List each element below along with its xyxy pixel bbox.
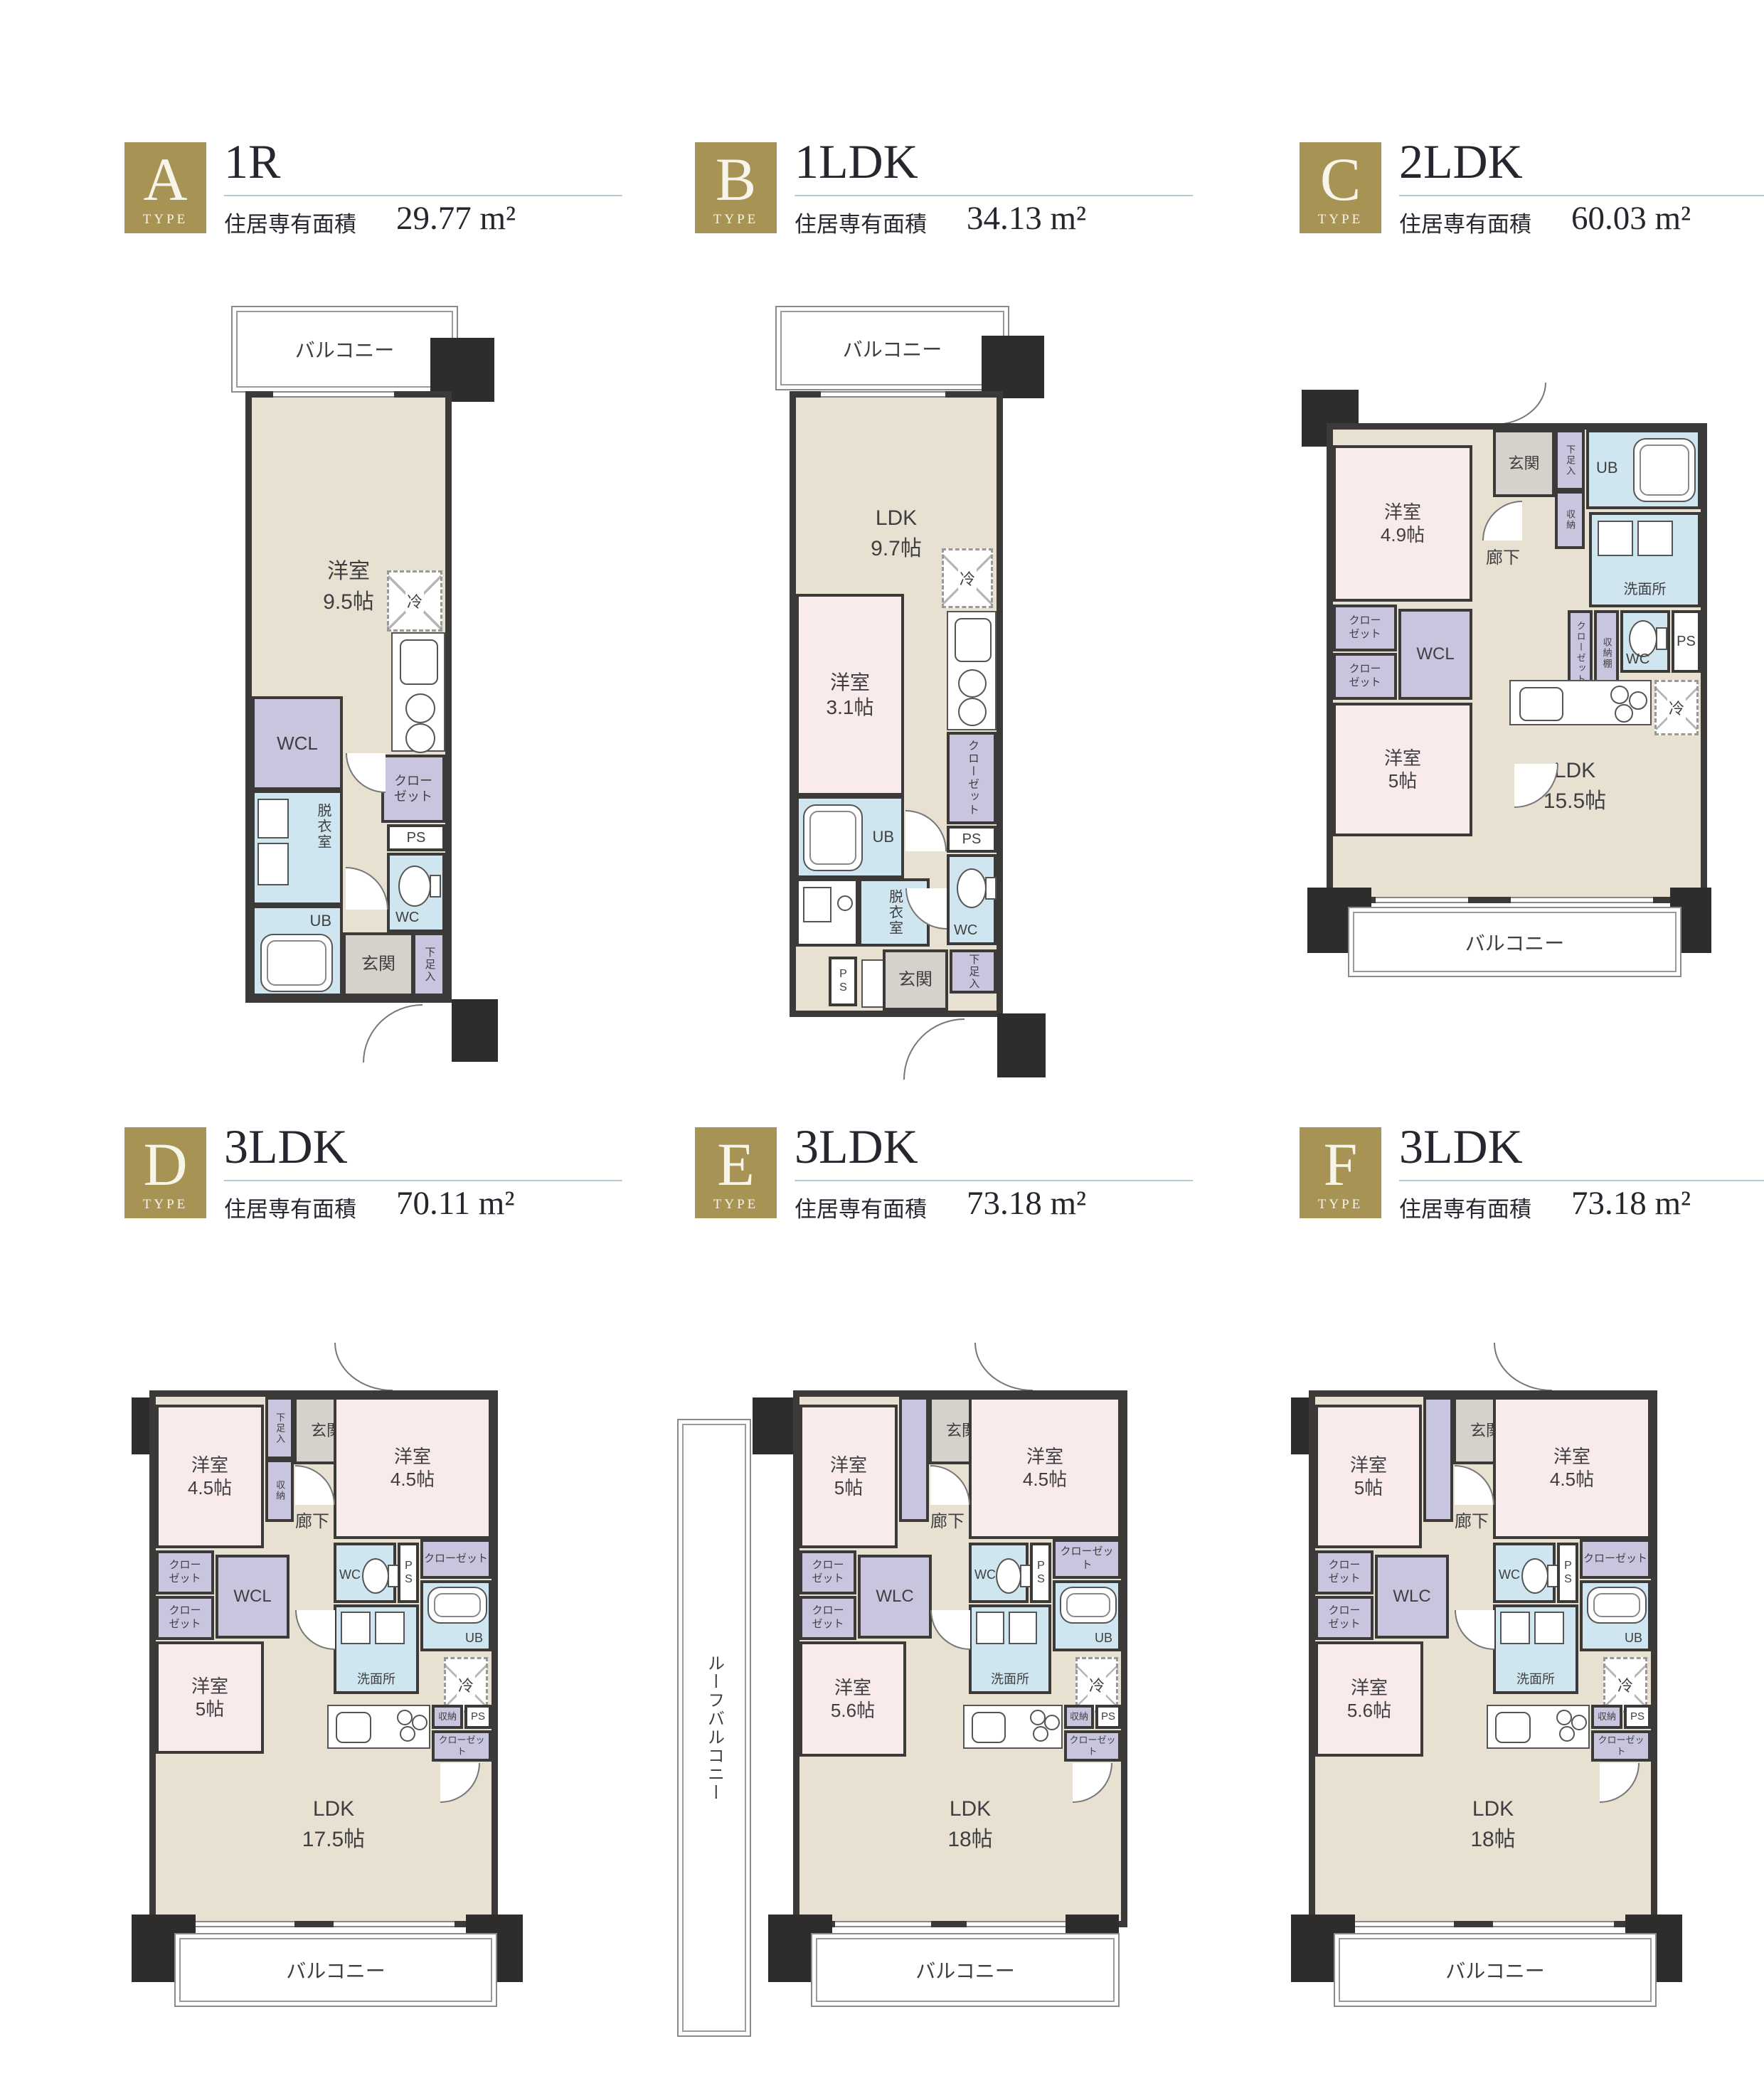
closet-label: クローゼット: [1346, 614, 1383, 641]
type-badge-b: B TYPE: [695, 142, 777, 233]
closet: クローゼット: [947, 732, 997, 824]
type-letter: D: [143, 1134, 187, 1195]
hall-label: 廊下: [295, 1511, 329, 1533]
type-letter: C: [1320, 149, 1361, 210]
header-type-b: B TYPE 1LDK 住居専有面積 34.13 m²: [695, 142, 1193, 270]
washroom: 洗面所: [969, 1604, 1051, 1694]
room-name: 洋室: [830, 670, 870, 695]
unit-outline: 洋室 9.5帖 冷 クローゼット PS WC 下足入 玄関 WCL: [245, 391, 452, 1003]
bathtub-shape: [1060, 1587, 1117, 1624]
rouka-text: 廊下: [1455, 1511, 1489, 1533]
walk-in-closet: WLC: [1375, 1555, 1449, 1639]
closet-label: クローゼット: [166, 1604, 203, 1631]
walk-in-closet: WCL: [1398, 609, 1472, 700]
burner-shape: [1610, 686, 1629, 704]
door-arc: [1073, 1763, 1112, 1803]
burner-shape: [1033, 1726, 1048, 1742]
toilet-shape: [996, 1558, 1021, 1594]
entry-door-arc: [363, 1004, 423, 1063]
toilet-shape: [362, 1558, 389, 1594]
bedroom-3: 洋室 5帖: [156, 1641, 264, 1754]
burner-shape: [958, 698, 987, 726]
pipe-space: PS: [947, 826, 997, 853]
type-badge-a: A TYPE: [124, 142, 206, 233]
door-arc: [1600, 1763, 1640, 1803]
room-name: 洋室: [830, 1454, 867, 1477]
closet-right: クローゼット: [1580, 1539, 1651, 1579]
layout-name: 1R: [224, 134, 280, 190]
shuno-label: 収納: [1598, 1711, 1616, 1722]
vanity-shape: [341, 1612, 371, 1644]
room-size: 17.5帖: [302, 1826, 365, 1853]
washer-shape: [1637, 521, 1673, 556]
bathtub-shape: [803, 804, 863, 871]
area-caption: 住居専有面積: [795, 206, 927, 238]
storage: 収納: [1555, 491, 1585, 549]
header-rule: [1399, 1180, 1764, 1181]
header-rule: [795, 195, 1193, 196]
storage-2: 収納: [1064, 1705, 1094, 1729]
room-ldk-label: LDK 17.5帖: [270, 1795, 398, 1853]
vanity-block: [796, 878, 859, 947]
bedroom-2: 洋室 5帖: [1333, 703, 1472, 836]
ub-label: UB: [1095, 1630, 1112, 1646]
burner-shape: [397, 1710, 413, 1725]
room-name: LDK: [1554, 757, 1595, 784]
bathtub-shape: [1633, 438, 1696, 502]
rei-label: 冷: [405, 590, 424, 612]
type-caption: TYPE: [143, 212, 188, 228]
ub-label: UB: [465, 1630, 483, 1646]
balcony: バルコニー: [174, 1933, 497, 2007]
rei-label: 冷: [1667, 696, 1686, 719]
plan-e: ルーフバルコニー 玄関 洋室 5帖 洋室 4.5帖 廊下 クローゼット クローゼ…: [669, 1337, 1138, 2055]
layout-name: 2LDK: [1399, 134, 1523, 190]
layout-name: 1LDK: [795, 134, 918, 190]
shuno-label: 収納: [438, 1711, 457, 1722]
toilet-room: WC: [334, 1543, 396, 1603]
bedroom-1: 洋室 5帖: [1315, 1405, 1422, 1548]
wcl-label: WCL: [277, 732, 318, 755]
door-arc: [295, 1465, 335, 1505]
vanity-shape: [803, 887, 831, 922]
room-name: 洋室: [834, 1676, 871, 1700]
room-size: 3.1帖: [827, 695, 874, 720]
window-opening: [273, 391, 394, 398]
room-name: 洋室: [1351, 1676, 1388, 1700]
header-type-e: E TYPE 3LDK 住居専有面積 73.18 m²: [695, 1127, 1193, 1255]
window-opening: [835, 1921, 931, 1927]
room-size: 5帖: [196, 1698, 224, 1721]
entry-door-arc: [903, 1018, 965, 1080]
kitchen-counter: [391, 632, 445, 752]
genkan-label: 玄関: [1508, 454, 1539, 474]
type-badge-c: C TYPE: [1300, 142, 1381, 233]
closet-label: クローゼット: [1594, 1735, 1648, 1758]
header-rule: [795, 1180, 1193, 1181]
walk-in-closet: WLC: [858, 1555, 932, 1639]
pipe-space: PS: [1557, 1543, 1578, 1603]
bedroom: 洋室 3.1帖: [796, 594, 904, 796]
shoe-cabinet: 下足入: [950, 949, 997, 994]
closet-right: クローゼット: [420, 1539, 492, 1579]
door-arc: [930, 1465, 970, 1505]
toilet-room: WC: [1493, 1543, 1556, 1603]
area-caption: 住居専有面積: [1399, 206, 1531, 238]
entry-door-arc: [974, 1343, 1033, 1391]
ps-label: PS: [1034, 1560, 1048, 1587]
vanity-shape: [257, 799, 289, 838]
plan-c: 玄関 下足入 収納 UB 洗面所 洋室 4.9帖 廊下 クローゼット クローゼッ…: [1280, 370, 1721, 1024]
closet-label: クローゼット: [435, 1735, 489, 1758]
walk-in-closet: WCL: [216, 1555, 289, 1639]
balcony-label: バルコニー: [915, 1956, 1014, 1984]
refrigerator-space: 冷: [942, 548, 993, 608]
toilet-room: WC: [1620, 610, 1670, 673]
room-name: 洋室: [1026, 1445, 1063, 1469]
type-caption: TYPE: [1318, 212, 1364, 228]
closet-2: クローゼット: [1333, 653, 1397, 700]
room-size: 5帖: [834, 1476, 863, 1500]
room-ldk-label: LDK 18帖: [1429, 1795, 1557, 1853]
rouka-text: 廊下: [930, 1511, 965, 1533]
header-type-c: C TYPE 2LDK 住居専有面積 60.03 m²: [1300, 142, 1764, 270]
sink-shape: [1495, 1712, 1531, 1743]
shuno-label: 収納: [274, 1480, 285, 1501]
window-opening: [1376, 897, 1468, 903]
storage: 収納: [265, 1459, 294, 1522]
room-name: 洋室: [1384, 747, 1421, 770]
room-size: 18帖: [1470, 1826, 1515, 1853]
closet-right: クローゼット: [1053, 1539, 1121, 1579]
storage-2: 収納: [1591, 1705, 1622, 1729]
door-arc: [346, 753, 386, 793]
balcony: バルコニー: [1334, 1933, 1657, 2007]
room-size: 18帖: [947, 1826, 992, 1853]
layout-name: 3LDK: [1399, 1119, 1523, 1175]
closet-3: クローゼット: [1591, 1730, 1651, 1762]
bedroom-2: 洋室 4.5帖: [334, 1397, 492, 1539]
pipe-space: PS: [1672, 610, 1701, 673]
room-name: 洋室: [1350, 1454, 1387, 1477]
roof-balcony: ルーフバルコニー: [677, 1419, 751, 2037]
rei-label: 冷: [457, 1673, 475, 1696]
type-letter: B: [716, 149, 756, 210]
burner-shape: [405, 723, 435, 753]
unit-bath: UB: [1053, 1580, 1121, 1651]
senmen-label: 洗面所: [972, 1671, 1048, 1688]
room-name: 洋室: [327, 558, 370, 585]
wlc-label: WLC: [1393, 1586, 1430, 1607]
ub-label: UB: [1625, 1630, 1642, 1646]
datsui-label: 脱衣室: [886, 889, 903, 936]
bedroom-2: 洋室 4.5帖: [969, 1397, 1121, 1539]
senmen-label: 洗面所: [336, 1671, 416, 1688]
roof-balcony-label: ルーフバルコニー: [702, 1654, 727, 1802]
washer-dot: [837, 895, 853, 911]
area-value: 29.77 m²: [396, 199, 516, 238]
type-caption: TYPE: [713, 212, 759, 228]
window-opening: [1493, 1921, 1614, 1927]
vanity-shape: [1598, 521, 1633, 556]
balcony-label: バルコニー: [286, 1956, 385, 1984]
closet-label: クローゼット: [1326, 1559, 1363, 1586]
sink-shape: [400, 639, 438, 685]
toilet-room: WC: [387, 853, 445, 932]
header-type-f: F TYPE 3LDK 住居専有面積 73.18 m²: [1300, 1127, 1764, 1255]
header-type-a: A TYPE 1R 住居専有面積 29.77 m²: [124, 142, 622, 270]
closet-label: クローゼット: [424, 1553, 488, 1566]
bathtub-shape: [427, 1587, 487, 1624]
pipe-space: PS: [387, 824, 445, 851]
hall-label: 廊下: [1486, 547, 1520, 569]
wc-label: WC: [1499, 1567, 1520, 1583]
room-size: 9.7帖: [871, 535, 922, 563]
toilet-shape: [957, 868, 987, 908]
layout-name: 3LDK: [795, 1119, 918, 1175]
burner-shape: [1030, 1710, 1046, 1725]
door-arc: [440, 1763, 480, 1803]
room-size: 5帖: [1388, 770, 1417, 793]
wc-label: WC: [1626, 651, 1649, 669]
area-value: 70.11 m²: [396, 1184, 514, 1223]
burner-shape: [1629, 691, 1647, 710]
balcony: バルコニー: [1348, 907, 1681, 977]
room-size: 15.5帖: [1543, 787, 1606, 815]
area-caption: 住居専有面積: [224, 206, 356, 238]
washer-shape: [1009, 1612, 1037, 1644]
area-value: 60.03 m²: [1571, 199, 1691, 238]
bedroom-2: 洋室 4.5帖: [1493, 1397, 1651, 1539]
ps-label: PS: [471, 1710, 485, 1724]
closet-label: クローゼット: [166, 1559, 203, 1586]
wc-label: WC: [954, 922, 977, 939]
type-caption: TYPE: [713, 1197, 759, 1213]
toilet-shape: [1521, 1558, 1548, 1594]
room-name: 洋室: [1384, 501, 1421, 524]
balcony: バルコニー: [231, 306, 458, 393]
type-badge-f: F TYPE: [1300, 1127, 1381, 1218]
room-size: 9.5帖: [323, 588, 374, 616]
window-opening: [334, 1921, 455, 1927]
pillar-block: [997, 1013, 1046, 1077]
ps-label: PS: [962, 831, 982, 848]
room-size: 4.5帖: [390, 1468, 435, 1491]
header-rule: [1399, 195, 1764, 196]
closet-1: クローゼット: [156, 1550, 214, 1594]
toilet-room: WC: [947, 854, 997, 945]
pipe-space-2: PS: [1095, 1705, 1121, 1729]
area-value: 73.18 m²: [967, 1184, 1086, 1223]
room-size: 5帖: [1354, 1476, 1383, 1500]
room-name: 洋室: [394, 1445, 431, 1469]
burner-shape: [400, 1726, 415, 1742]
balcony-label: バルコニー: [295, 335, 394, 363]
unit-bath: UB: [420, 1580, 492, 1651]
ps-label: PS: [1677, 633, 1696, 651]
plan-b: バルコニー LDK 9.7帖 冷 クローゼット PS WC 洋室 3.1帖: [761, 299, 1046, 1095]
unit-bath: UB: [1586, 430, 1701, 509]
door-arc: [930, 1610, 970, 1650]
balcony-label: バルコニー: [1465, 928, 1564, 957]
area-value: 73.18 m²: [1571, 1184, 1691, 1223]
washer-shape: [257, 843, 289, 885]
bathtub-shape: [260, 934, 333, 992]
bedroom-1: 洋室 4.9帖: [1333, 445, 1472, 602]
kitchen-counter: [1487, 1705, 1590, 1749]
closet-label: クローゼット: [1574, 621, 1585, 685]
sink-shape: [336, 1712, 371, 1743]
bedroom-3: 洋室 5.6帖: [1315, 1641, 1423, 1757]
door-arc: [1455, 1465, 1494, 1505]
closet-label: クローゼット: [1583, 1553, 1647, 1566]
pipe-space-2: PS: [829, 957, 857, 1006]
balcony-label: バルコニー: [843, 334, 942, 363]
burner-shape: [1556, 1710, 1572, 1725]
senmen-label: 洗面所: [1496, 1671, 1576, 1688]
unit-outline: 玄関 下足入 収納 UB 洗面所 洋室 4.9帖 廊下 クローゼット クローゼッ…: [1327, 423, 1707, 903]
pipe-space-2: PS: [1624, 1705, 1651, 1729]
room-name: LDK: [1472, 1795, 1514, 1823]
closet-label: クローゼット: [1067, 1735, 1118, 1758]
unit-bath: UB: [796, 796, 904, 878]
dressing-room: 脱衣室: [252, 790, 343, 905]
wcl-label: WCL: [233, 1586, 271, 1607]
ps-label: PS: [1561, 1560, 1575, 1587]
sink-shape: [1519, 687, 1563, 721]
shunodana-label: 収納棚: [1600, 637, 1612, 669]
kitchen-counter: [947, 611, 997, 730]
closet-2: クローゼット: [1315, 1596, 1374, 1640]
kitchen-counter: [1509, 680, 1652, 725]
type-letter: F: [1324, 1134, 1358, 1195]
pipe-space: PS: [398, 1543, 419, 1603]
unit-outline: LDK 9.7帖 冷 クローゼット PS WC 洋室 3.1帖 UB: [790, 391, 1003, 1017]
room-size: 5.6帖: [831, 1699, 875, 1722]
shoe-cabinet: 下足入: [413, 932, 445, 996]
burner-shape: [1559, 1726, 1575, 1742]
kitchen-counter: [963, 1705, 1063, 1749]
burner-shape: [405, 693, 435, 723]
bathtub-shape: [1587, 1587, 1647, 1624]
plan-a: バルコニー 洋室 9.5帖 冷 クローゼット PS WC 下足入 玄関: [213, 299, 498, 1081]
entry-door-arc: [1494, 1343, 1552, 1391]
shuno-label: 収納: [1070, 1711, 1088, 1722]
room-size: 4.9帖: [1381, 523, 1425, 547]
area-caption: 住居専有面積: [224, 1191, 356, 1223]
balcony-label: バルコニー: [1445, 1956, 1544, 1984]
header-rule: [224, 195, 622, 196]
genkan-label: 玄関: [361, 954, 395, 975]
bedroom-1: 洋室 5帖: [799, 1405, 898, 1548]
ub-label: UB: [872, 827, 894, 847]
closet-2: クローゼット: [799, 1596, 856, 1640]
pillar-block: [982, 336, 1044, 398]
storage-2: 収納: [432, 1705, 463, 1729]
geta-label: 下足入: [274, 1412, 285, 1444]
type-caption: TYPE: [1318, 1197, 1364, 1213]
entry: 玄関: [1493, 430, 1555, 497]
wc-label: WC: [395, 909, 419, 927]
ps-label: PS: [1630, 1710, 1645, 1724]
rei-label: 冷: [1088, 1673, 1106, 1696]
burner-shape: [1615, 704, 1633, 723]
bedroom-1: 洋室 4.5帖: [156, 1405, 264, 1548]
room-name: LDK: [950, 1795, 991, 1823]
washer-shape: [1534, 1612, 1564, 1644]
window-opening: [1354, 1921, 1454, 1927]
washroom: 洗面所: [1589, 512, 1701, 607]
wc-label: WC: [339, 1567, 361, 1583]
rei-label: 冷: [1616, 1673, 1635, 1696]
type-letter: A: [143, 149, 187, 210]
type-caption: TYPE: [143, 1197, 188, 1213]
sink-shape: [955, 618, 992, 662]
geta-label: 下足入: [967, 954, 980, 990]
plan-d: 下足入 収納 玄関 洋室 4.5帖 洋室 4.5帖 廊下 クローゼット クローゼ…: [114, 1337, 569, 2055]
sink-shape: [972, 1712, 1006, 1743]
vanity-shape: [1500, 1612, 1530, 1644]
ps-label: PS: [407, 829, 426, 847]
balcony: バルコニー: [775, 306, 1009, 390]
unit-bath: UB: [252, 905, 343, 996]
genkan-label: 玄関: [898, 969, 933, 991]
balcony: バルコニー: [811, 1933, 1120, 2007]
pipe-space: PS: [1030, 1543, 1051, 1603]
type-letter: E: [717, 1134, 755, 1195]
vanity-shape: [976, 1612, 1004, 1644]
closet-1: クローゼット: [1315, 1550, 1374, 1594]
geta-label: 下足入: [423, 947, 436, 983]
door-arc: [295, 1610, 335, 1650]
rei-label: 冷: [958, 567, 977, 590]
window-opening: [195, 1921, 294, 1927]
entry: 玄関: [343, 932, 414, 996]
area-caption: 住居専有面積: [795, 1191, 927, 1223]
ub-label: UB: [309, 911, 331, 931]
pipe-space-2: PS: [464, 1705, 492, 1729]
area-value: 34.13 m²: [967, 199, 1086, 238]
room-name: 洋室: [1553, 1445, 1590, 1469]
window-opening: [1511, 897, 1653, 903]
burner-shape: [1571, 1715, 1587, 1730]
wlc-label: WLC: [876, 1586, 913, 1607]
closet-label: クローゼット: [809, 1604, 846, 1631]
closet-label: クローゼット: [965, 740, 979, 816]
unit-bath: UB: [1580, 1580, 1651, 1651]
closet-label: クローゼット: [809, 1559, 846, 1586]
toilet-shape: [398, 866, 431, 907]
burner-shape: [412, 1715, 427, 1730]
rouka-text: 廊下: [295, 1511, 329, 1533]
room-name: 洋室: [191, 1454, 228, 1477]
entry-door-arc: [1494, 383, 1546, 425]
room-size: 5.6帖: [1347, 1699, 1391, 1722]
room-name: LDK: [876, 504, 917, 532]
shoe-cabinet: 下足入: [1555, 430, 1585, 491]
washroom: 洗面所: [1493, 1604, 1578, 1694]
door-arc: [1482, 501, 1522, 541]
closet-label: クローゼット: [390, 773, 436, 805]
shoe-cabinet: 下足入: [265, 1397, 294, 1459]
burner-shape: [1044, 1715, 1060, 1730]
door-arc: [346, 867, 388, 910]
toilet-room: WC: [969, 1543, 1029, 1603]
ps-label: PS: [1101, 1710, 1115, 1724]
closet-3: クローゼット: [1064, 1730, 1121, 1762]
refrigerator-space: 冷: [387, 570, 442, 632]
ps-label: PS: [836, 968, 850, 995]
